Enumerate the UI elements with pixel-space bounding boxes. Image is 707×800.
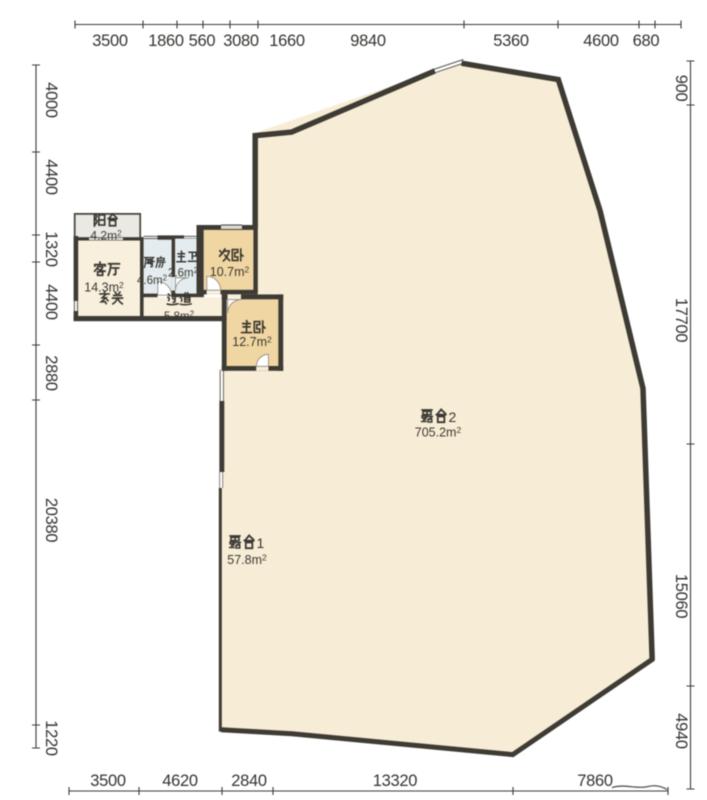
svg-text:20380: 20380 bbox=[42, 498, 60, 543]
svg-text:705.2m2: 705.2m2 bbox=[415, 425, 462, 440]
svg-text:9840: 9840 bbox=[350, 32, 386, 50]
svg-text:4600: 4600 bbox=[583, 32, 619, 50]
svg-text:17700: 17700 bbox=[672, 298, 690, 343]
svg-text:1320: 1320 bbox=[42, 231, 60, 267]
svg-text:4400: 4400 bbox=[42, 159, 60, 195]
svg-text:3500: 3500 bbox=[90, 772, 126, 790]
svg-text:2840: 2840 bbox=[231, 772, 267, 790]
svg-text:4000: 4000 bbox=[42, 82, 60, 118]
svg-text:1: 1 bbox=[257, 535, 265, 551]
svg-text:15060: 15060 bbox=[672, 574, 690, 619]
svg-text:4400: 4400 bbox=[42, 284, 60, 320]
svg-text:3500: 3500 bbox=[92, 32, 128, 50]
svg-text:7860: 7860 bbox=[577, 772, 613, 790]
svg-text:900: 900 bbox=[672, 75, 690, 102]
svg-text:1660: 1660 bbox=[269, 32, 305, 50]
svg-text:2: 2 bbox=[449, 409, 457, 425]
svg-text:4940: 4940 bbox=[672, 713, 690, 749]
svg-text:560: 560 bbox=[189, 32, 216, 50]
svg-text:1220: 1220 bbox=[42, 720, 60, 756]
svg-text:1860: 1860 bbox=[148, 32, 184, 50]
svg-text:12.7m2: 12.7m2 bbox=[232, 335, 272, 350]
svg-text:13320: 13320 bbox=[373, 772, 418, 790]
svg-text:3080: 3080 bbox=[223, 32, 259, 50]
svg-text:57.8m2: 57.8m2 bbox=[227, 553, 267, 568]
svg-text:5360: 5360 bbox=[493, 32, 529, 50]
svg-text:680: 680 bbox=[633, 32, 660, 50]
svg-text:10.7m2: 10.7m2 bbox=[210, 265, 250, 280]
svg-text:4620: 4620 bbox=[162, 772, 198, 790]
svg-text:2880: 2880 bbox=[42, 355, 60, 391]
